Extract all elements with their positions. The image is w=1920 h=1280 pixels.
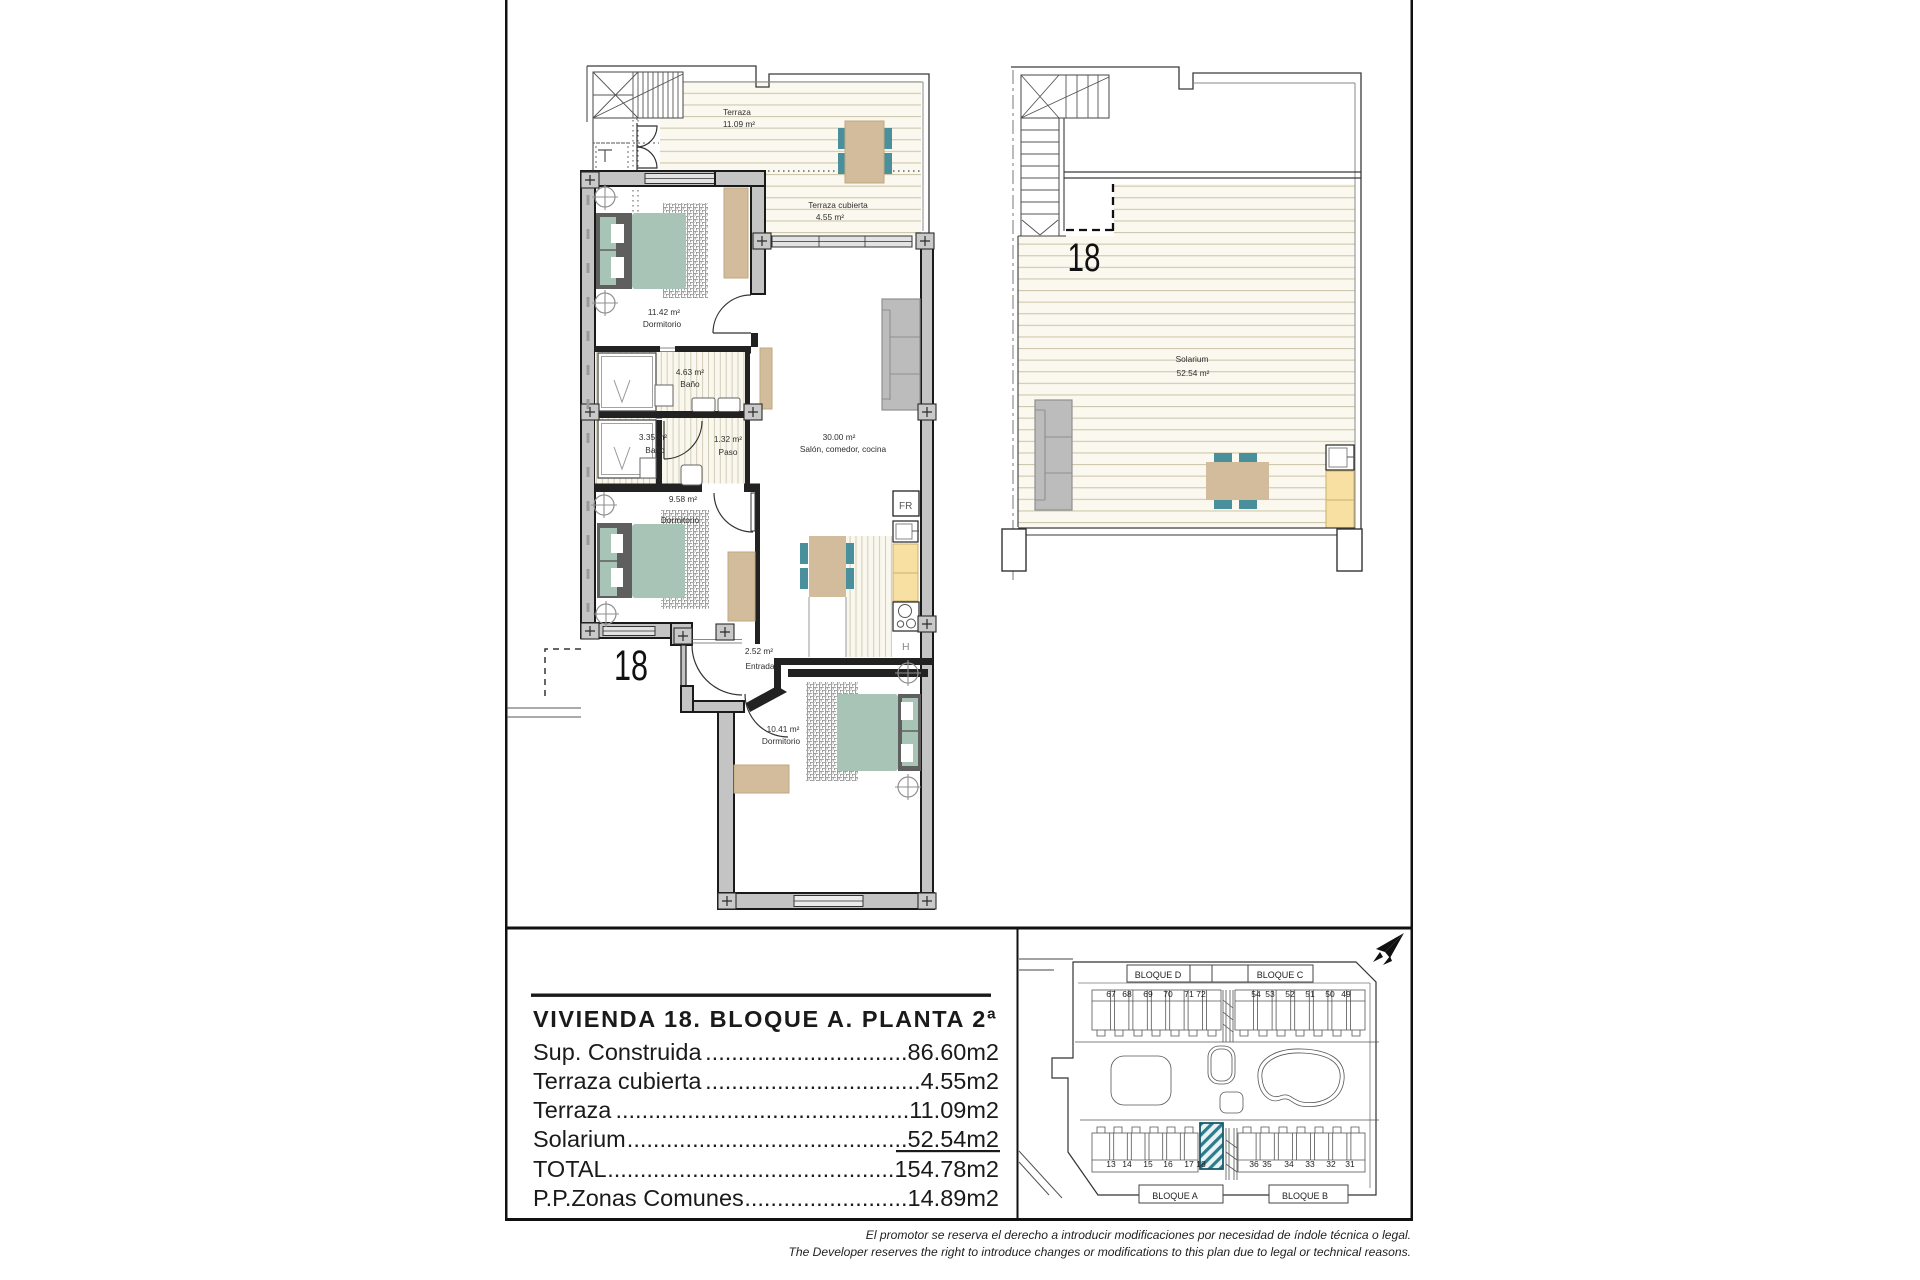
svg-text:67: 67 — [1106, 989, 1116, 999]
svg-text:68: 68 — [1122, 989, 1132, 999]
svg-text:El promotor se reserva el dere: El promotor se reserva el derecho a intr… — [866, 1228, 1411, 1242]
svg-text:49: 49 — [1341, 989, 1351, 999]
svg-text:VIVIENDA 18. BLOQUE A. PLANTA: VIVIENDA 18. BLOQUE A. PLANTA 2ª — [533, 1006, 997, 1032]
svg-text:52.54 m²: 52.54 m² — [1177, 368, 1210, 378]
svg-text:Solarium: Solarium — [533, 1126, 626, 1152]
svg-text:Entrada: Entrada — [745, 661, 774, 671]
svg-text:13: 13 — [1106, 1159, 1116, 1169]
svg-text:Terraza cubierta: Terraza cubierta — [533, 1068, 702, 1094]
svg-text:18: 18 — [614, 642, 648, 690]
svg-text:Dormitorio: Dormitorio — [762, 736, 801, 746]
svg-text:Paso: Paso — [719, 447, 738, 457]
svg-text:10.41 m²: 10.41 m² — [767, 724, 800, 734]
svg-text:Salón, comedor, cocina: Salón, comedor, cocina — [800, 444, 887, 454]
svg-text:BLOQUE C: BLOQUE C — [1257, 970, 1304, 980]
svg-text:51: 51 — [1305, 989, 1315, 999]
svg-text:TOTAL: TOTAL — [533, 1156, 607, 1182]
svg-text:4.55 m²: 4.55 m² — [816, 212, 844, 222]
svg-text:Baño: Baño — [645, 445, 665, 455]
svg-text:P.P.Zonas Comunes: P.P.Zonas Comunes — [533, 1185, 744, 1211]
svg-text:FR: FR — [899, 501, 912, 512]
svg-text:9.58 m²: 9.58 m² — [669, 494, 697, 504]
svg-text:Dormitorio: Dormitorio — [643, 319, 682, 329]
svg-text:Terraza: Terraza — [723, 107, 751, 117]
svg-text:34: 34 — [1284, 1159, 1294, 1169]
svg-text:.........................14.89: .........................14.89m2 — [744, 1185, 999, 1211]
svg-text:H: H — [902, 641, 910, 653]
svg-text:70: 70 — [1163, 989, 1173, 999]
svg-text:2.52 m²: 2.52 m² — [745, 646, 773, 656]
svg-text:53: 53 — [1265, 989, 1275, 999]
svg-text:50: 50 — [1325, 989, 1335, 999]
svg-text:4.63 m²: 4.63 m² — [676, 367, 704, 377]
svg-text:Solarium: Solarium — [1176, 354, 1209, 364]
svg-text:1.32 m²: 1.32 m² — [714, 434, 742, 444]
svg-text:..............................: ...............................86.60m2 — [705, 1039, 999, 1065]
svg-text:30.00 m²: 30.00 m² — [823, 432, 856, 442]
svg-text:54: 54 — [1251, 989, 1261, 999]
svg-text:The Developer reserves the rig: The Developer reserves the right to intr… — [788, 1245, 1411, 1259]
svg-text:18: 18 — [1068, 236, 1101, 280]
svg-text:Sup. Construida: Sup. Construida — [533, 1039, 702, 1065]
svg-text:16: 16 — [1163, 1159, 1173, 1169]
svg-text:18: 18 — [1196, 1159, 1206, 1169]
svg-text:..............................: ........................................… — [615, 1097, 999, 1123]
svg-text:Terraza: Terraza — [533, 1097, 612, 1123]
svg-text:Terraza cubierta: Terraza cubierta — [808, 200, 868, 210]
svg-text:15: 15 — [1143, 1159, 1153, 1169]
svg-text:32: 32 — [1326, 1159, 1336, 1169]
svg-text:BLOQUE A: BLOQUE A — [1152, 1191, 1198, 1201]
svg-text:14: 14 — [1122, 1159, 1132, 1169]
svg-text:71: 71 — [1184, 989, 1194, 999]
svg-text:11.42 m²: 11.42 m² — [648, 307, 680, 317]
svg-text:..............................: ........................................… — [627, 1126, 999, 1152]
svg-text:72: 72 — [1196, 989, 1206, 999]
svg-text:31: 31 — [1345, 1159, 1355, 1169]
svg-text:35: 35 — [1262, 1159, 1272, 1169]
svg-text:Dormitorio: Dormitorio — [661, 515, 700, 525]
svg-text:69: 69 — [1143, 989, 1153, 999]
svg-text:36: 36 — [1249, 1159, 1259, 1169]
svg-text:33: 33 — [1305, 1159, 1315, 1169]
svg-text:BLOQUE B: BLOQUE B — [1282, 1191, 1328, 1201]
svg-text:Baño: Baño — [680, 379, 700, 389]
svg-text:52: 52 — [1285, 989, 1295, 999]
svg-text:..............................: ........................................… — [607, 1156, 999, 1182]
svg-text:..............................: .................................4.55m2 — [705, 1068, 999, 1094]
svg-text:3.35 m²: 3.35 m² — [639, 432, 667, 442]
svg-text:17: 17 — [1184, 1159, 1194, 1169]
svg-text:BLOQUE D: BLOQUE D — [1135, 970, 1182, 980]
svg-text:11.09 m²: 11.09 m² — [723, 119, 755, 129]
